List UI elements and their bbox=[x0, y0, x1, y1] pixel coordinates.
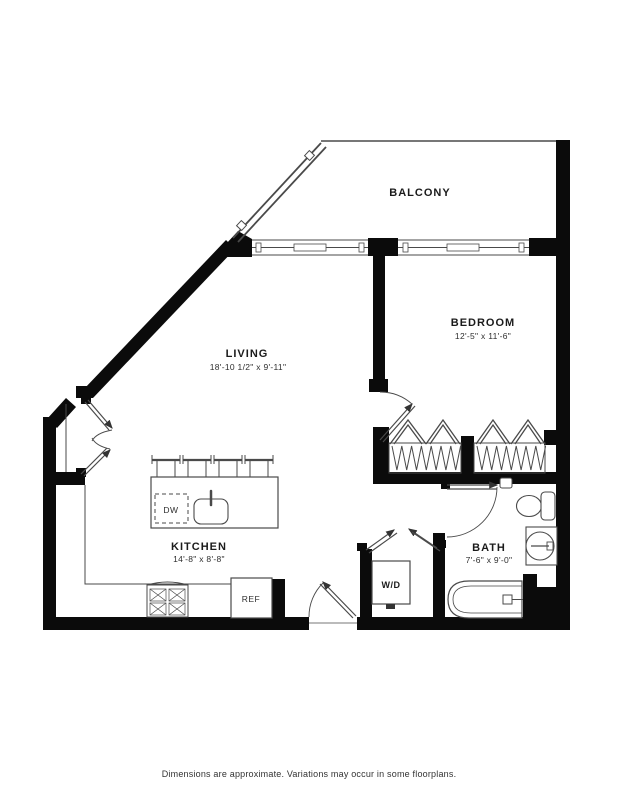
bathtub bbox=[448, 581, 523, 618]
bifold-door-icon bbox=[511, 420, 545, 444]
living-dims: 18'-10 1/2" x 9'-11" bbox=[210, 362, 287, 372]
kitchen-island bbox=[151, 477, 278, 528]
bifold-door-icon bbox=[426, 420, 460, 444]
bedroom-label: BEDROOM bbox=[451, 317, 515, 329]
closet-right bbox=[474, 420, 546, 473]
nook-doors bbox=[66, 400, 112, 476]
washer-dryer-label: W/D bbox=[382, 580, 401, 590]
bifold-door-icon bbox=[390, 420, 426, 444]
stove bbox=[147, 582, 188, 617]
floorplan-drawing: BALCONY BEDROOM 12'-5" x 11'-6" LIVING 1… bbox=[0, 0, 618, 800]
dishwasher-label: DW bbox=[163, 505, 178, 515]
hanger-icons bbox=[477, 446, 546, 470]
towel-holder bbox=[500, 478, 512, 488]
bedroom-dims: 12'-5" x 11'-6" bbox=[455, 331, 511, 341]
washer-dryer-closet bbox=[366, 529, 440, 609]
stool-icon bbox=[245, 455, 273, 477]
toilet bbox=[517, 492, 556, 520]
living-label: LIVING bbox=[226, 348, 269, 360]
stool-icon bbox=[214, 455, 242, 477]
kitchen-label: KITCHEN bbox=[171, 541, 227, 553]
hanger-icons bbox=[392, 446, 461, 470]
vanity-sink bbox=[526, 527, 557, 565]
tub-faucet-icon bbox=[503, 595, 512, 604]
floorplan-page: BALCONY BEDROOM 12'-5" x 11'-6" LIVING 1… bbox=[0, 0, 618, 800]
bath-dims: 7'-6" x 9'-0" bbox=[466, 555, 513, 565]
stool-icon bbox=[152, 455, 180, 477]
bath-label: BATH bbox=[472, 542, 506, 554]
bar-stools bbox=[152, 455, 273, 477]
footer-disclaimer: Dimensions are approximate. Variations m… bbox=[162, 769, 457, 779]
interior-walls bbox=[76, 252, 563, 628]
closet-left bbox=[389, 420, 461, 473]
bath-door bbox=[447, 485, 497, 537]
refrigerator-label: REF bbox=[242, 594, 261, 604]
kitchen-dims: 14'-8" x 8'-8" bbox=[173, 554, 225, 564]
stool-icon bbox=[183, 455, 211, 477]
bifold-door-icon bbox=[476, 420, 510, 444]
balcony-label: BALCONY bbox=[389, 187, 450, 199]
entry-door bbox=[309, 582, 357, 623]
